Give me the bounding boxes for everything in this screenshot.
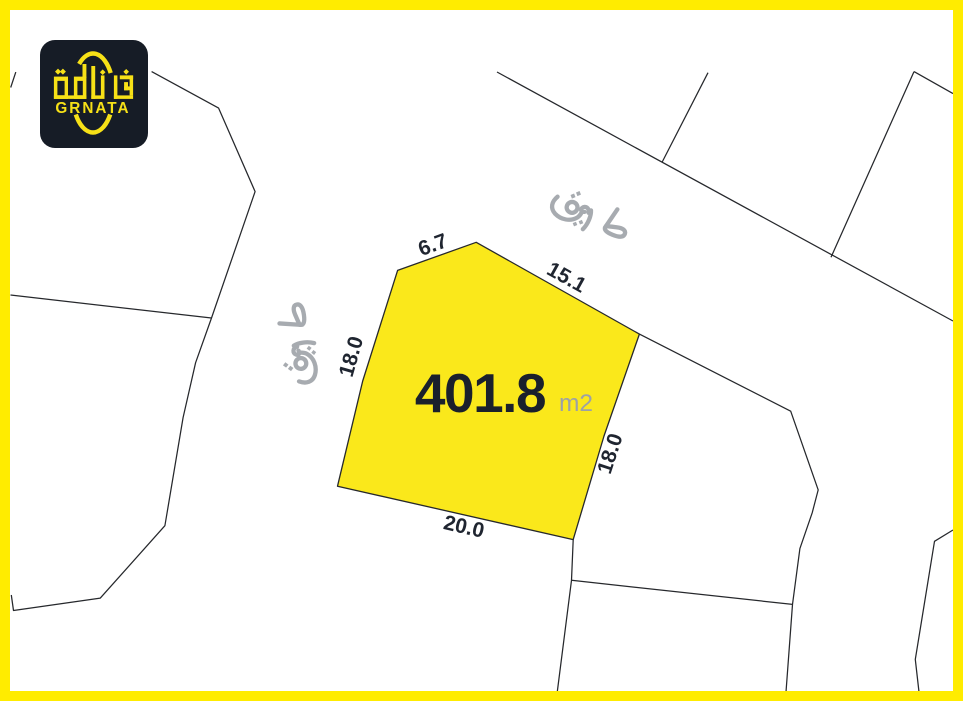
svg-text:GRNATA: GRNATA: [55, 100, 130, 117]
svg-text:m2: m2: [559, 390, 593, 417]
svg-text:401.8: 401.8: [415, 362, 545, 424]
